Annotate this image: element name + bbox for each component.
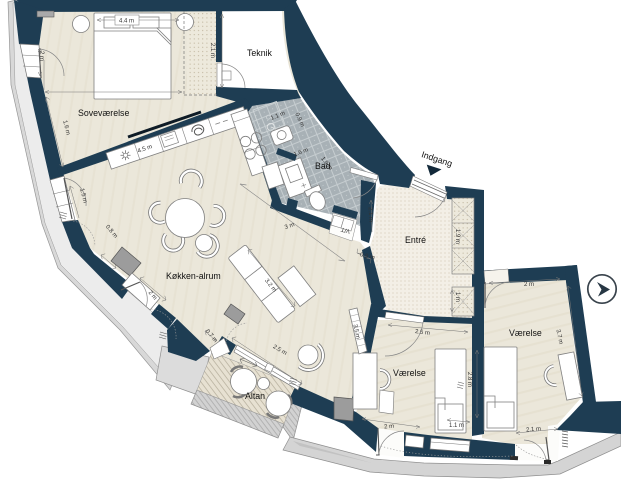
svg-text:4.4 m: 4.4 m <box>119 19 134 25</box>
svg-text:2 m: 2 m <box>384 424 395 431</box>
svg-text:Køkken-alrum: Køkken-alrum <box>166 271 221 281</box>
svg-text:2 m: 2 m <box>38 51 44 61</box>
svg-text:2 m: 2 m <box>524 282 534 288</box>
svg-text:Værelse: Værelse <box>509 328 542 338</box>
svg-text:2.8 m: 2.8 m <box>466 372 472 387</box>
svg-text:1.1 m: 1.1 m <box>449 423 464 429</box>
svg-text:Teknik: Teknik <box>247 48 273 58</box>
svg-text:Altan: Altan <box>245 391 265 401</box>
svg-text:Værelse: Værelse <box>393 368 426 378</box>
svg-text:1 m: 1 m <box>454 292 460 302</box>
svg-text:2.1 m: 2.1 m <box>367 207 374 222</box>
svg-text:Entré: Entré <box>405 235 426 245</box>
svg-text:1.9 m: 1.9 m <box>454 229 460 244</box>
svg-text:2.1 m: 2.1 m <box>209 43 215 58</box>
svg-text:Soveværelse: Soveværelse <box>78 108 129 118</box>
svg-text:Bad: Bad <box>315 161 331 171</box>
